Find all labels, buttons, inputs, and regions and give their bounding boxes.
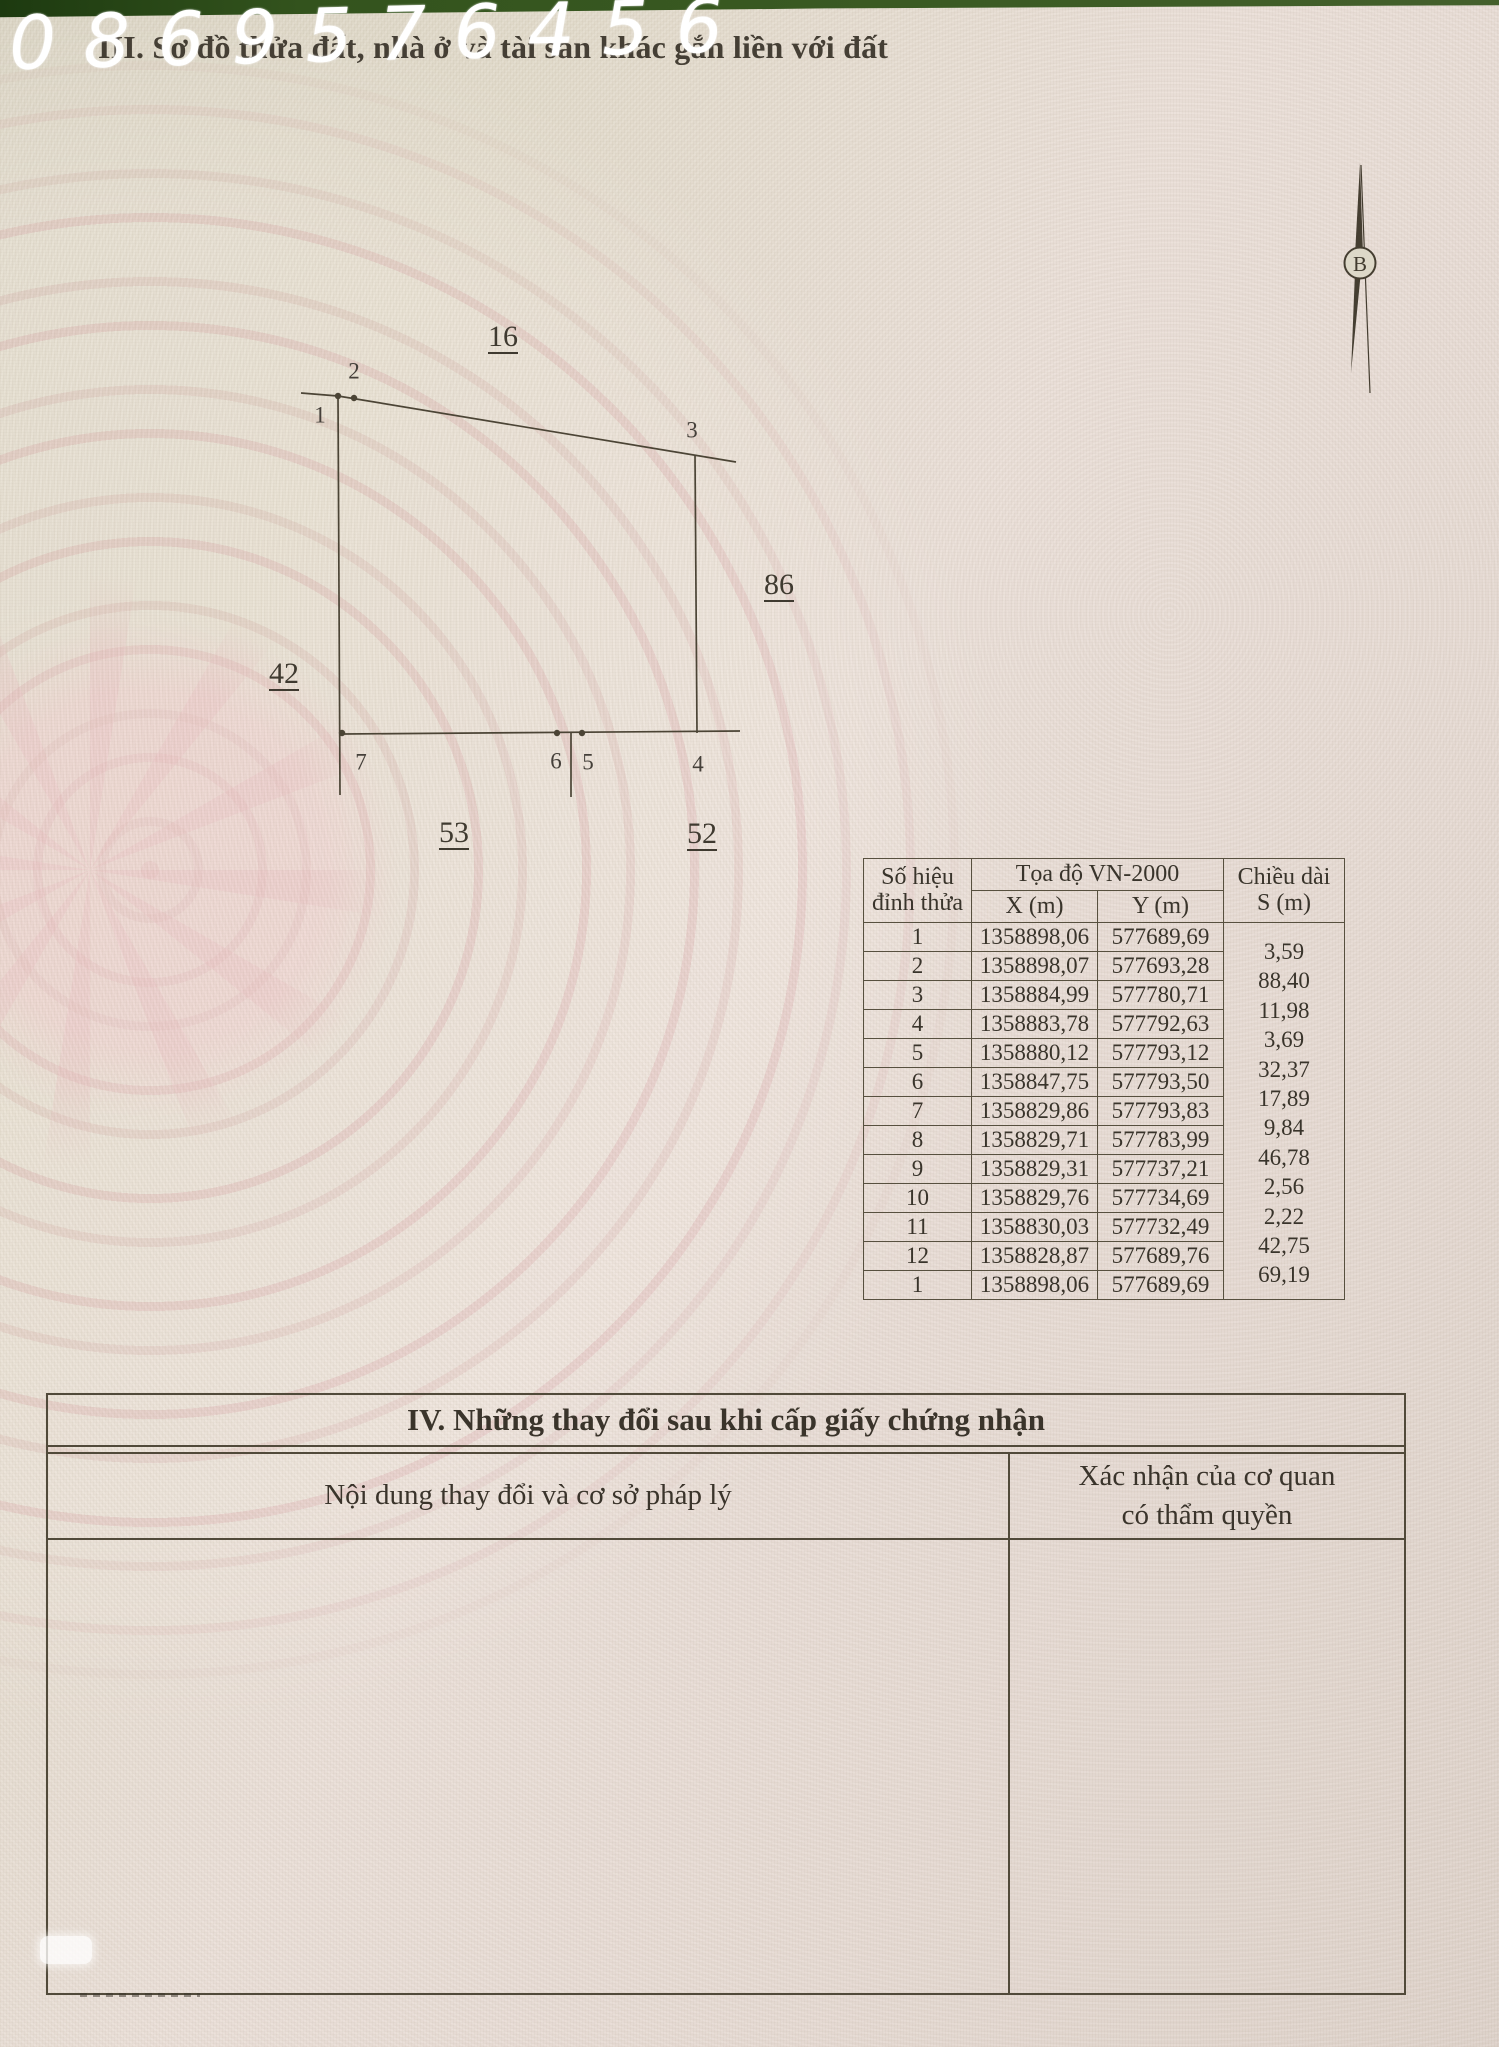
cell-y: 577737,21 [1098, 1155, 1224, 1184]
edge-length: 42,75 [1224, 1231, 1344, 1260]
vertex-dot-7 [339, 730, 345, 736]
parcel-sketch [280, 320, 760, 820]
changes-content-header-text: Nội dung thay đổi và cơ sở pháp lý [324, 1476, 732, 1515]
cell-vertex: 3 [864, 981, 972, 1010]
authority-cell [1010, 1540, 1404, 1993]
cell-x: 1358829,71 [972, 1126, 1098, 1155]
vertex-dot-2 [351, 395, 357, 401]
vertex-dot-1 [335, 393, 341, 399]
header-length-line2: S (m) [1224, 891, 1344, 916]
vertex-label-7: 7 [355, 751, 367, 774]
adjacent-parcel-52: 52 [687, 819, 717, 849]
cell-y: 577793,50 [1098, 1068, 1224, 1097]
edge-length: 11,98 [1224, 996, 1344, 1025]
section-four-title: IV. Những thay đổi sau khi cấp giấy chứn… [48, 1395, 1404, 1445]
cell-lengths: 3,59 88,40 11,98 3,69 32,37 17,89 9,84 4… [1224, 923, 1345, 1300]
edge-length: 69,19 [1224, 1260, 1344, 1289]
cell-y: 577693,28 [1098, 952, 1224, 981]
cell-y: 577793,83 [1098, 1097, 1224, 1126]
cell-vertex: 6 [864, 1068, 972, 1097]
cell-x: 1358829,31 [972, 1155, 1098, 1184]
cell-y: 577734,69 [1098, 1184, 1224, 1213]
edge-length: 46,78 [1224, 1143, 1344, 1172]
edge-length: 2,22 [1224, 1202, 1344, 1231]
edge-length: 88,40 [1224, 966, 1344, 995]
cell-x: 1358828,87 [972, 1242, 1098, 1271]
header-vertex-line2: đỉnh thửa [864, 891, 971, 916]
coordinate-table: Số hiệu đỉnh thửa Tọa độ VN-2000 Chiều d… [863, 858, 1345, 1300]
page-edge-marks [80, 1993, 200, 1997]
cell-vertex: 4 [864, 1010, 972, 1039]
header-length-line1: Chiều dài [1224, 865, 1344, 890]
cell-vertex: 11 [864, 1213, 972, 1242]
vertex-label-4: 4 [692, 753, 704, 776]
cell-y: 577689,69 [1098, 923, 1224, 952]
cell-y: 577780,71 [1098, 981, 1224, 1010]
adjacent-parcel-42: 42 [269, 659, 299, 689]
double-rule [48, 1445, 1404, 1454]
compass-north-label: B [1353, 252, 1367, 276]
cell-vertex: 12 [864, 1242, 972, 1271]
table-row: 1 1358898,06 577689,69 3,59 88,40 11,98 … [864, 923, 1345, 952]
cell-x: 1358898,06 [972, 1271, 1098, 1300]
header-x: X (m) [972, 891, 1098, 923]
edge-length: 9,84 [1224, 1113, 1344, 1142]
vertex-label-5: 5 [582, 751, 594, 774]
authority-header-line2: có thẩm quyền [1122, 1496, 1293, 1535]
cell-vertex: 8 [864, 1126, 972, 1155]
vertex-label-6: 6 [550, 750, 562, 773]
cell-vertex: 1 [864, 1271, 972, 1300]
cell-vertex: 1 [864, 923, 972, 952]
cell-y: 577689,76 [1098, 1242, 1224, 1271]
vertex-label-1: 1 [314, 404, 326, 427]
cell-vertex: 2 [864, 952, 972, 981]
cell-x: 1358829,76 [972, 1184, 1098, 1213]
phone-watermark: 0869576456 [8, 0, 751, 90]
cell-y: 577783,99 [1098, 1126, 1224, 1155]
vertex-dot-5 [579, 730, 585, 736]
cell-y: 577793,12 [1098, 1039, 1224, 1068]
photo-glare-blob [40, 1936, 92, 1964]
changes-content-cell [48, 1540, 1010, 1993]
header-coords: Tọa độ VN-2000 [972, 859, 1224, 891]
cell-y: 577689,69 [1098, 1271, 1224, 1300]
authority-header-line1: Xác nhận của cơ quan [1079, 1457, 1336, 1496]
header-vertex: Số hiệu đỉnh thửa [864, 859, 972, 923]
cell-x: 1358884,99 [972, 981, 1098, 1010]
cell-y: 577732,49 [1098, 1213, 1224, 1242]
vertex-label-2: 2 [348, 360, 360, 383]
cell-x: 1358829,86 [972, 1097, 1098, 1126]
cell-y: 577792,63 [1098, 1010, 1224, 1039]
certificate-page: { "phone_watermark": "0869576456", "page… [0, 0, 1499, 2047]
edge-length: 2,56 [1224, 1172, 1344, 1201]
north-compass-icon: B [1330, 155, 1390, 405]
header-y: Y (m) [1098, 891, 1224, 923]
edge-length: 3,59 [1224, 937, 1344, 966]
changes-content-column-header: Nội dung thay đổi và cơ sở pháp lý [48, 1454, 1010, 1538]
cell-x: 1358898,07 [972, 952, 1098, 981]
adjacent-parcel-53: 53 [439, 818, 469, 848]
boundary-top [338, 396, 736, 462]
cell-vertex: 7 [864, 1097, 972, 1126]
edge-length: 17,89 [1224, 1084, 1344, 1113]
boundary-bottom [344, 731, 740, 734]
adjacent-parcel-16: 16 [488, 322, 518, 352]
cell-vertex: 10 [864, 1184, 972, 1213]
section-four-body [48, 1540, 1404, 1993]
cell-x: 1358830,03 [972, 1213, 1098, 1242]
adjacent-parcel-86: 86 [764, 570, 794, 600]
cell-vertex: 5 [864, 1039, 972, 1068]
vertex-label-3: 3 [686, 419, 698, 442]
header-vertex-line1: Số hiệu [864, 865, 971, 890]
boundary-right [695, 455, 697, 733]
authority-column-header: Xác nhận của cơ quan có thẩm quyền [1010, 1454, 1404, 1538]
edge-length: 3,69 [1224, 1025, 1344, 1054]
boundary-tick-left [301, 393, 338, 396]
section-four-box: IV. Những thay đổi sau khi cấp giấy chứn… [46, 1393, 1406, 1995]
cell-x: 1358898,06 [972, 923, 1098, 952]
cell-x: 1358847,75 [972, 1068, 1098, 1097]
header-length: Chiều dài S (m) [1224, 859, 1345, 923]
vertex-dot-6 [554, 730, 560, 736]
cell-x: 1358880,12 [972, 1039, 1098, 1068]
table-header-row: Số hiệu đỉnh thửa Tọa độ VN-2000 Chiều d… [864, 859, 1345, 891]
compass-needle-bottom [1351, 271, 1361, 373]
cell-vertex: 9 [864, 1155, 972, 1184]
edge-length-list: 3,59 88,40 11,98 3,69 32,37 17,89 9,84 4… [1224, 923, 1344, 1290]
cell-x: 1358883,78 [972, 1010, 1098, 1039]
section-four-header-row: Nội dung thay đổi và cơ sở pháp lý Xác n… [48, 1454, 1404, 1540]
edge-length: 32,37 [1224, 1055, 1344, 1084]
